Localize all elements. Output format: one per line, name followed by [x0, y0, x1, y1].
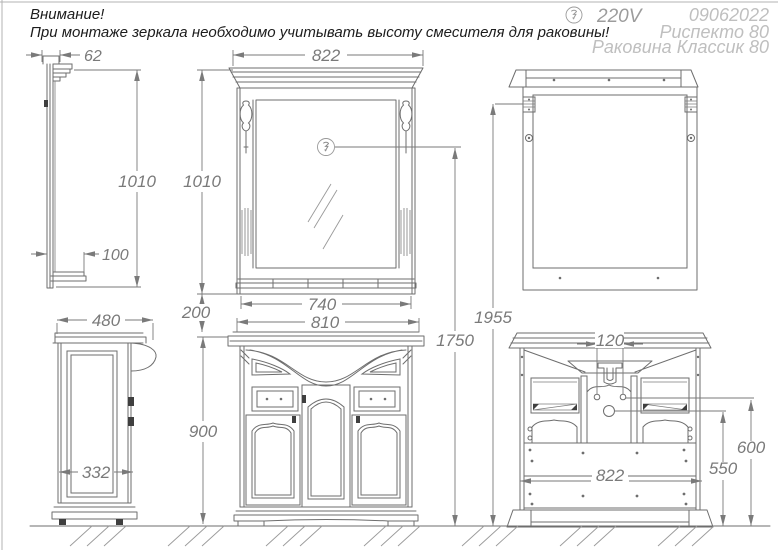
door-middle	[302, 385, 350, 507]
basin-model-label: Раковина Классик 80	[592, 37, 769, 57]
latch-side-lower	[128, 417, 134, 426]
sink-apron-curve	[246, 350, 406, 386]
drawer-box-right	[641, 378, 689, 413]
apron-corner-panels	[252, 359, 400, 375]
cabinet-front-view	[228, 332, 424, 526]
plinth	[234, 507, 418, 526]
dim-cabinet-height: 900	[189, 337, 228, 524]
dim-cabinet-side-panel-width: 332	[59, 463, 133, 482]
warning-note: Внимание! При монтаже зеркала необходимо…	[30, 6, 610, 41]
cabinet-rear-view	[507, 333, 713, 527]
rear-posts	[520, 348, 700, 510]
dim-mirror-width: 822	[233, 46, 423, 66]
mirror-rear-view	[509, 70, 698, 290]
dim-mount-height: 1955	[474, 104, 523, 526]
svg-text:1010: 1010	[118, 172, 156, 191]
cabinet-side-view	[52, 333, 156, 525]
pilasters	[240, 346, 412, 507]
dim-cabinet-top-width: 810	[237, 313, 419, 332]
sink-underside	[524, 350, 696, 384]
keyhole-mount-left	[526, 135, 533, 142]
rear-door-left	[528, 420, 577, 443]
dim-mirror-shelf-width: 740	[241, 295, 411, 314]
svg-text:1750: 1750	[436, 331, 474, 350]
lightning-icon	[571, 10, 576, 19]
latch-side-upper	[128, 397, 134, 406]
svg-text:100: 100	[102, 247, 129, 264]
basin-overhang	[131, 343, 156, 371]
drawer-box-left	[531, 378, 579, 413]
svg-text:822: 822	[312, 46, 341, 65]
countertop	[228, 332, 424, 346]
rear-door-right	[643, 420, 692, 443]
drawer-right	[354, 387, 400, 411]
outlet-lightning-icon	[323, 142, 328, 151]
mirror-cornice	[229, 68, 423, 88]
dim-mirror-to-cabinet-gap: 200	[178, 294, 214, 332]
slat-right	[631, 376, 637, 443]
drain-hole	[604, 406, 615, 417]
mirror-front-view	[229, 68, 423, 294]
svg-text:332: 332	[82, 463, 111, 482]
dim-cabinet-depth: 480	[57, 311, 153, 340]
left-sconce-icon	[240, 101, 252, 153]
latch-middle-door	[302, 395, 306, 403]
dim-mirror-height: 1010	[183, 70, 237, 294]
svg-text:200: 200	[181, 303, 211, 322]
pipe-panel	[587, 385, 631, 443]
power-circle-icon	[566, 7, 582, 23]
svg-text:62: 62	[84, 48, 102, 65]
svg-text:810: 810	[311, 313, 340, 332]
drawer-left	[252, 387, 298, 411]
mirror-clip	[44, 100, 48, 107]
dim-mirror-shelf-depth: 100	[31, 247, 129, 272]
latch-left-door	[292, 416, 296, 423]
svg-text:822: 822	[596, 466, 625, 485]
mirror-side-view	[43, 56, 86, 288]
rear-cornice	[509, 70, 698, 87]
frame-fluting	[242, 208, 410, 256]
side-plinth	[52, 507, 137, 519]
pipe-hole-right	[620, 394, 626, 400]
svg-text:1010: 1010	[183, 172, 221, 191]
rear-plinth	[507, 510, 713, 527]
svg-text:550: 550	[709, 459, 738, 478]
outlet-circle-icon	[318, 139, 335, 156]
ground	[30, 526, 770, 546]
right-sconce-icon	[400, 101, 412, 153]
mirror-frame	[237, 88, 415, 294]
svg-text:600: 600	[737, 438, 766, 457]
voltage-label: 220V	[596, 6, 644, 27]
svg-text:120: 120	[596, 331, 625, 350]
svg-text:740: 740	[308, 295, 337, 314]
svg-text:900: 900	[189, 422, 218, 441]
mirror-shelf	[236, 279, 416, 288]
dim-drain-hole-height: 550	[614, 411, 738, 526]
pipe-hole-left	[594, 394, 600, 400]
door-right	[352, 415, 406, 505]
glass-hatch	[308, 184, 343, 249]
warning-line-2: При монтаже зеркала необходимо учитывать…	[30, 24, 610, 41]
technical-drawing-page: Внимание! При монтаже зеркала необходимо…	[0, 0, 778, 550]
warning-line-1: Внимание!	[30, 6, 105, 23]
keyhole-mount-right	[688, 135, 695, 142]
ground-hatch	[70, 526, 714, 546]
dim-mirror-side-width: 62	[26, 48, 102, 65]
slat-left	[581, 376, 587, 443]
mirror-back-panel	[533, 95, 687, 268]
latch-right-door	[356, 416, 360, 423]
svg-text:1955: 1955	[474, 308, 512, 327]
svg-text:480: 480	[92, 311, 121, 330]
door-left	[246, 415, 300, 505]
